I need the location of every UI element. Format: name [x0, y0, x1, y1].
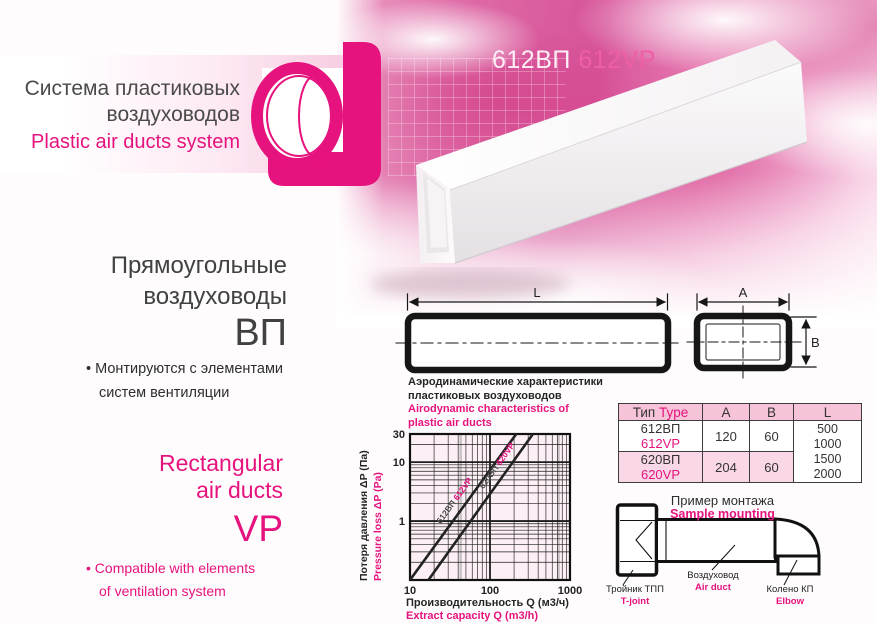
chart-title: Аэродинамические характеристики пластико…	[408, 376, 603, 430]
header-title-en: Plastic air ducts system	[0, 130, 240, 154]
section-heading-ru: Прямоугольные воздуховоды	[40, 250, 287, 312]
header-title-ru-line2: воздуховодов	[0, 102, 240, 128]
mounting-title-ru: Пример монтажа	[650, 493, 795, 508]
chart-title-ru2: пластиковых воздуховодов	[408, 390, 603, 404]
dim-label-L: L	[533, 285, 540, 300]
x-axis-label: Производительность Q (м3/ч) Extract capa…	[406, 597, 569, 623]
spec-table-row-612: 612ВП 612VP 120 60 500 1000 1500 2000	[619, 421, 862, 452]
round-duct-logo-icon	[240, 35, 390, 195]
svg-text:10: 10	[393, 457, 405, 469]
cell-type-612: 612ВП 612VP	[619, 421, 703, 452]
svg-text:30: 30	[393, 429, 405, 441]
catalog-page: Система пластиковых воздуховодов Plastic…	[0, 0, 877, 623]
spec-table-header-row: Тип Type A B L	[619, 404, 862, 421]
header: Система пластиковых воздуховодов Plastic…	[0, 76, 240, 154]
product-title: 612ВП 612VP	[492, 46, 656, 75]
svg-text:10: 10	[404, 585, 416, 597]
aerodynamic-chart: 612ВП 612VP620ВП 620VP30101101001000	[368, 424, 610, 623]
header-title-ru-line1: Система пластиковых	[0, 76, 240, 102]
mounting-label-duct: Воздуховод Air duct	[680, 570, 746, 593]
y-axis-label-ru: Потеря давления ΔP (Па)	[358, 450, 371, 581]
series-code-ru: ВП	[40, 312, 287, 355]
cell-a-620: 204	[703, 452, 750, 483]
heading-ru-line1: Прямоугольные	[40, 250, 287, 281]
y-axis-label-en: Pressure loss ΔP (Pa)	[372, 472, 385, 581]
dim-label-B: B	[811, 335, 820, 350]
svg-text:1: 1	[399, 516, 405, 528]
chart-title-en2: plastic air ducts	[408, 417, 603, 431]
series-code-en: VP	[40, 508, 283, 550]
col-header-a: A	[703, 404, 750, 421]
col-header-l: L	[794, 404, 862, 421]
svg-text:100: 100	[481, 585, 499, 597]
mounting-title-en: Sample mounting	[650, 507, 795, 521]
cell-type-620: 620ВП 620VP	[619, 452, 703, 483]
chart-title-ru1: Аэродинамические характеристики	[408, 376, 603, 390]
cell-lengths: 500 1000 1500 2000	[794, 421, 862, 483]
cell-a-612: 120	[703, 421, 750, 452]
col-header-b: B	[750, 404, 794, 421]
bullet-ru-line2: систем вентиляции	[99, 385, 229, 401]
bullet-en-line1: • Compatible with elements	[86, 560, 255, 576]
cell-b-620: 60	[750, 452, 794, 483]
heading-en-line1: Rectangular	[40, 450, 283, 477]
x-axis-label-ru: Производительность Q (м3/ч)	[406, 597, 569, 610]
heading-en-line2: air ducts	[40, 477, 283, 504]
spec-table: Тип Type A B L 612ВП 612VP 120 60 500 10…	[618, 403, 862, 483]
x-axis-label-en: Extract capacity Q (m3/h)	[406, 610, 569, 623]
chart-title-en1: Airodynamic characteristics of	[408, 403, 603, 417]
heading-ru-line2: воздуховоды	[40, 281, 287, 312]
product-duct-image	[370, 40, 807, 298]
col-header-type: Тип Type	[619, 404, 703, 421]
dim-label-A: A	[739, 285, 748, 300]
svg-text:1000: 1000	[558, 585, 582, 597]
product-code-en: 612VP	[578, 46, 656, 74]
bullet-ru-line1: • Монтируются с элементами	[86, 361, 283, 377]
bullet-en-line2: of ventilation system	[99, 583, 226, 599]
mounting-label-tjoint: Тройник ТПП T-joint	[602, 584, 668, 607]
dimension-drawing: L A B	[396, 285, 820, 378]
cell-b-612: 60	[750, 421, 794, 452]
section-heading-en: Rectangular air ducts	[40, 450, 283, 504]
mounting-label-elbow: Колено КП Elbow	[758, 584, 822, 607]
product-code-ru: 612ВП	[492, 46, 571, 74]
